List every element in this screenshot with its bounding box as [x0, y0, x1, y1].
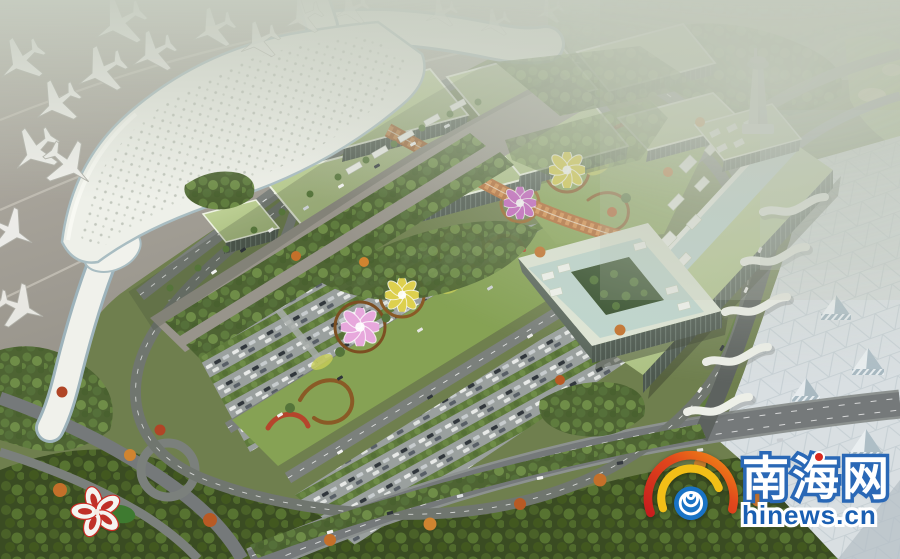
- watermark-site-name: 南海网 南海网: [742, 456, 892, 503]
- hinews-watermark: 南海网 南海网 hinews.cn hinews.cn: [632, 445, 892, 541]
- watermark-site-url: hinews.cn hinews.cn: [742, 502, 877, 529]
- hinews-spiral-logo-icon: [632, 445, 760, 541]
- watermark-text-block: 南海网 南海网 hinews.cn hinews.cn: [742, 456, 892, 529]
- airport-aerial-rendering: 南海网 南海网 hinews.cn hinews.cn: [0, 0, 900, 559]
- site-url-fill: hinews.cn: [742, 500, 877, 530]
